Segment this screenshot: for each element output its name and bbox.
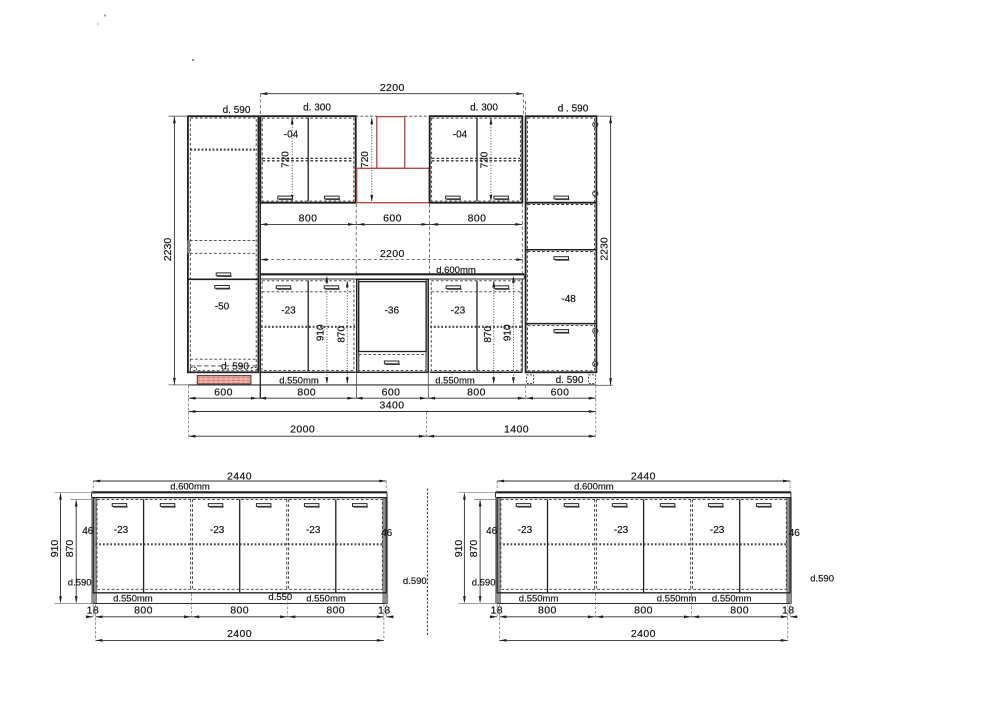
svg-text:-23: -23 <box>306 525 321 536</box>
svg-text:d.550mm: d.550mm <box>279 376 319 387</box>
svg-text:720: 720 <box>479 151 490 168</box>
svg-text:800: 800 <box>134 605 153 617</box>
svg-text:d.550mm: d.550mm <box>519 593 559 604</box>
svg-text:-23: -23 <box>518 525 533 536</box>
svg-text:-04: -04 <box>453 130 468 141</box>
svg-text:d.550mm: d.550mm <box>657 593 697 604</box>
svg-text:800: 800 <box>468 213 487 225</box>
svg-text:d. 300: d. 300 <box>303 103 331 114</box>
svg-text:-04: -04 <box>284 130 299 141</box>
svg-text:800: 800 <box>297 386 316 398</box>
svg-text:18: 18 <box>378 605 390 617</box>
svg-text:d.550mm: d.550mm <box>113 593 153 604</box>
svg-text:d.590: d.590 <box>403 576 427 587</box>
svg-text:d.550mm: d.550mm <box>712 593 752 604</box>
svg-text:910: 910 <box>49 540 61 558</box>
svg-text:d.550mm: d.550mm <box>306 593 346 604</box>
svg-text:d. 590: d. 590 <box>223 105 251 116</box>
svg-text:800: 800 <box>467 386 486 398</box>
svg-text:d. 590: d. 590 <box>221 361 249 372</box>
svg-text:-23: -23 <box>710 525 725 536</box>
svg-text:2400: 2400 <box>227 628 252 640</box>
svg-text:d.590: d.590 <box>472 577 496 588</box>
svg-text:600: 600 <box>382 386 401 398</box>
svg-text:720: 720 <box>280 151 291 168</box>
svg-text:d . 590: d . 590 <box>558 104 589 115</box>
svg-text:910: 910 <box>503 324 514 341</box>
svg-text:800: 800 <box>634 605 653 617</box>
svg-text:870: 870 <box>64 540 76 558</box>
svg-text:d. 300: d. 300 <box>470 103 498 114</box>
svg-text:d.600mm: d.600mm <box>574 482 614 493</box>
svg-text:910: 910 <box>315 324 326 341</box>
svg-text:d.550: d.550 <box>268 592 292 603</box>
svg-text:46: 46 <box>381 528 393 539</box>
svg-text:600: 600 <box>551 386 570 398</box>
svg-text:-36: -36 <box>385 305 400 316</box>
svg-text:720: 720 <box>360 151 371 168</box>
svg-text:800: 800 <box>326 605 345 617</box>
svg-text:46: 46 <box>82 526 94 537</box>
svg-text:910: 910 <box>453 540 465 558</box>
svg-text:870: 870 <box>483 326 494 343</box>
svg-text:-23: -23 <box>210 525 225 536</box>
svg-text:-23: -23 <box>451 305 466 316</box>
svg-text:18: 18 <box>782 605 794 617</box>
svg-text:d.600mm: d.600mm <box>170 482 210 493</box>
svg-text:2440: 2440 <box>227 471 252 483</box>
svg-text:2200: 2200 <box>380 82 405 94</box>
svg-text:46: 46 <box>789 528 801 539</box>
svg-text:d. 590: d. 590 <box>556 375 584 386</box>
svg-text:-23: -23 <box>614 525 629 536</box>
svg-text:800: 800 <box>730 605 749 617</box>
svg-text:2440: 2440 <box>631 471 656 483</box>
svg-text:46: 46 <box>486 526 498 537</box>
svg-text:1400: 1400 <box>504 424 529 436</box>
svg-text:2400: 2400 <box>631 628 656 640</box>
svg-text:2230: 2230 <box>162 238 174 262</box>
svg-text:2200: 2200 <box>380 248 405 260</box>
svg-text:870: 870 <box>336 326 347 343</box>
svg-text:-48: -48 <box>561 294 576 305</box>
svg-text:-23: -23 <box>114 525 129 536</box>
svg-text:d.590: d.590 <box>68 577 92 588</box>
svg-text:-23: -23 <box>281 305 296 316</box>
svg-text:870: 870 <box>468 540 480 558</box>
svg-text:600: 600 <box>214 386 233 398</box>
svg-text:d.550mm: d.550mm <box>435 376 475 387</box>
svg-text:2230: 2230 <box>598 237 610 261</box>
svg-text:2000: 2000 <box>290 424 315 436</box>
svg-text:600: 600 <box>383 213 402 225</box>
svg-text:-50: -50 <box>215 301 230 312</box>
svg-text:800: 800 <box>230 605 249 617</box>
svg-text:800: 800 <box>538 605 557 617</box>
svg-text:800: 800 <box>299 213 318 225</box>
svg-text:d.590: d.590 <box>810 574 834 585</box>
svg-text:3400: 3400 <box>380 400 405 412</box>
